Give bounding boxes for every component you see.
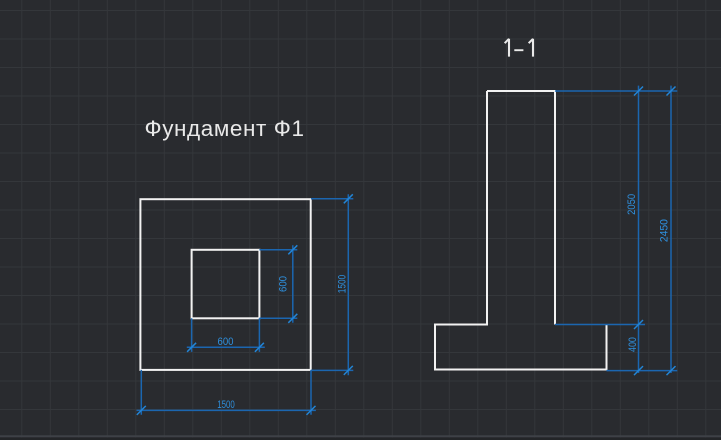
svg-text:1500: 1500 <box>217 399 235 411</box>
svg-text:600: 600 <box>278 276 290 292</box>
svg-text:600: 600 <box>218 336 234 348</box>
svg-text:2050: 2050 <box>626 194 638 215</box>
svg-text:1500: 1500 <box>336 275 348 294</box>
svg-text:Фундамент Ф1: Фундамент Ф1 <box>145 116 305 141</box>
svg-text:2450: 2450 <box>659 219 671 242</box>
svg-text:400: 400 <box>627 337 639 352</box>
